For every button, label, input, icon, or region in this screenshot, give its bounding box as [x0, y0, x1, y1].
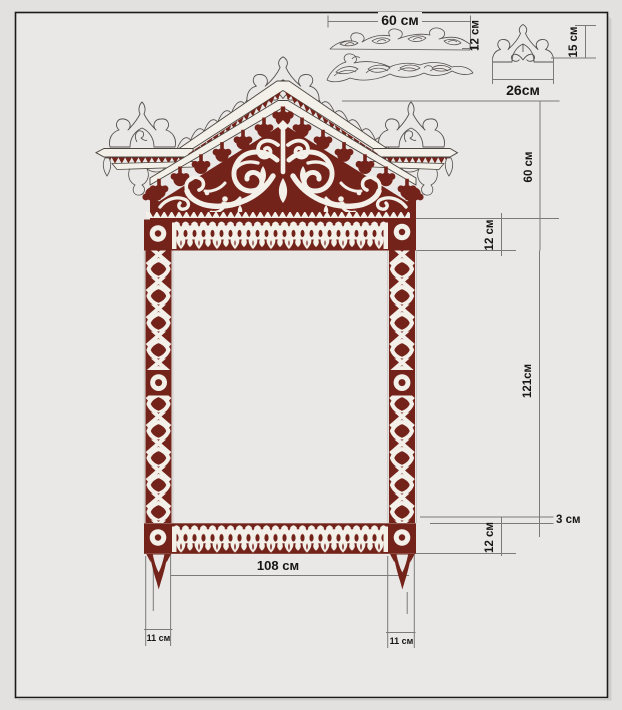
svg-text:26см: 26см: [506, 82, 540, 98]
svg-text:108 см: 108 см: [257, 558, 299, 573]
svg-text:11 см: 11 см: [147, 633, 171, 643]
svg-text:12 см: 12 см: [484, 220, 496, 251]
svg-text:121см: 121см: [522, 364, 534, 398]
svg-text:11 см: 11 см: [390, 636, 414, 646]
svg-text:60 см: 60 см: [381, 12, 419, 28]
svg-text:12 см: 12 см: [470, 20, 482, 51]
svg-text:15 см: 15 см: [568, 27, 580, 58]
svg-text:12 см: 12 см: [484, 522, 496, 553]
svg-text:3 см: 3 см: [556, 514, 581, 526]
svg-text:60 см: 60 см: [523, 152, 535, 183]
